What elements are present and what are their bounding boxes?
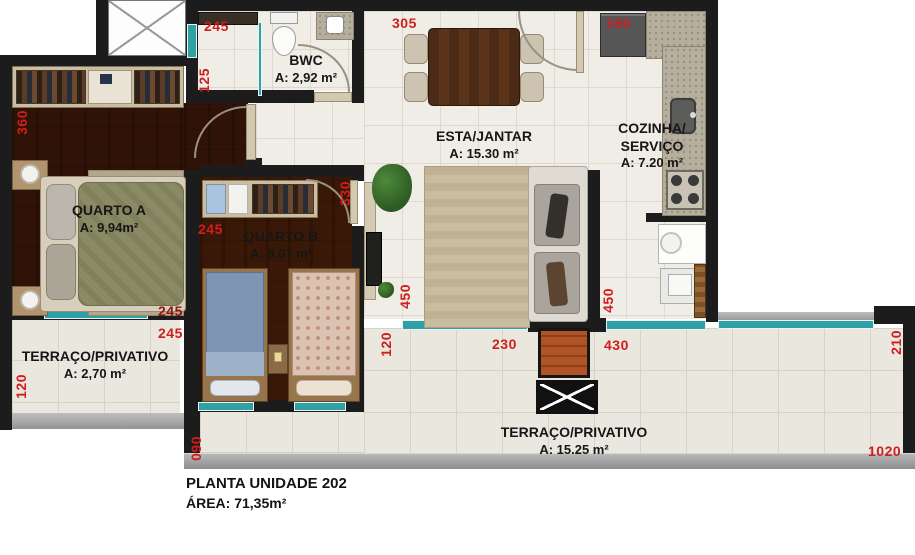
wall-kitchen-right: [706, 0, 718, 322]
washing-machine-door: [660, 232, 682, 254]
kitchen-slider-window: [606, 320, 706, 330]
esta-jantar-name: ESTA/JANTAR: [406, 128, 562, 146]
quarto-b-wardrobe-clothes: [252, 184, 314, 214]
quarto-a-pillow-2: [46, 244, 76, 300]
dim-kitchen-terrace: 450: [601, 288, 615, 313]
stove-burner-4: [688, 193, 699, 204]
elevator-shaft: [108, 0, 186, 56]
quarto-a-duvet: [78, 182, 184, 306]
quarto-a-lamp-1: [20, 164, 40, 184]
dim-hall-top: 305: [392, 16, 417, 30]
room-label-terraco-grande: TERRAÇO/PRIVATIVO A: 15.25 m²: [494, 424, 654, 458]
wall-living-kitchen: [586, 170, 600, 332]
service-deck-strip: [694, 264, 706, 318]
quarto-b-area: A: 8,07 m²: [206, 246, 356, 262]
living-rug: [424, 166, 530, 328]
room-label-quarto-a: QUARTO A A: 9,94m²: [38, 202, 180, 236]
terraco-grande-area: A: 15.25 m²: [494, 442, 654, 458]
dim-quarto-a-window: 245: [158, 326, 183, 340]
esta-jantar-area: A: 15.30 m²: [406, 146, 562, 162]
dim-terrace-left-edge: 090: [189, 436, 203, 461]
plan-title-line2: ÁREA: 71,35m²: [186, 494, 486, 513]
quarto-b-bed-blue-pillow: [210, 380, 260, 396]
quarto-b-wardrobe-shirt-2: [228, 184, 248, 214]
toilet-tank: [270, 12, 298, 24]
corridor-floor: [256, 100, 364, 170]
dining-table: [428, 28, 520, 106]
dining-chair-4: [520, 72, 544, 102]
quarto-a-door-leaf: [246, 104, 256, 160]
wall-right-outer: [903, 306, 915, 464]
bwc-shaft-window: [187, 24, 197, 58]
dim-terrace-right-span: 430: [604, 338, 629, 352]
plan-title: PLANTA UNIDADE 202 ÁREA: 71,35m²: [186, 474, 486, 513]
dim-quarto-b-right: 330: [338, 181, 352, 206]
dim-quarto-a-left: 360: [15, 110, 29, 135]
bwc-door-leaf: [314, 92, 352, 102]
bwc-name: BWC: [250, 52, 362, 70]
dim-quarto-b-bottom: 120: [379, 332, 393, 357]
terrace-large-floor-left: [200, 410, 364, 454]
bwc-area: A: 2,92 m²: [250, 70, 362, 86]
wall-left-outer: [0, 55, 12, 430]
terraco-pequeno-name: TERRAÇO/PRIVATIVO: [20, 348, 170, 366]
terraco-grande-name: TERRAÇO/PRIVATIVO: [494, 424, 654, 442]
quarto-a-area: A: 9,94m²: [38, 220, 180, 236]
stove-burner-2: [688, 175, 699, 186]
terrace-rail-glass: [718, 320, 874, 329]
wall-shaft-bottom: [96, 56, 190, 66]
wall-terrace-corner: [874, 306, 904, 324]
quarto-b-bed-blue-fold: [206, 352, 264, 376]
stove-burner-3: [671, 193, 682, 204]
dining-chair-2: [404, 72, 428, 102]
quarto-b-candle: [274, 352, 282, 362]
room-label-esta-jantar: ESTA/JANTAR A: 15.30 m²: [406, 128, 562, 162]
cozinha-area: A: 7.20 m²: [602, 155, 702, 171]
terrace-duct: [536, 380, 598, 414]
quarto-a-wardrobe-clothes-right: [134, 70, 180, 104]
tv-panel: [366, 232, 382, 286]
room-label-terraco-pequeno: TERRAÇO/PRIVATIVO A: 2,70 m²: [20, 348, 170, 382]
quarto-b-wardrobe-shirt-1: [206, 184, 226, 214]
cozinha-name-line1: COZINHA/: [602, 120, 702, 138]
quarto-b-bed-floral-mattress: [292, 272, 356, 376]
dim-living-terrace: 450: [398, 284, 412, 309]
plan-title-line1: PLANTA UNIDADE 202: [186, 474, 486, 494]
dim-terrace-right: 210: [889, 330, 903, 355]
dim-bwc-left: 125: [197, 68, 211, 93]
wall-quarto-a-top: [0, 55, 100, 66]
cozinha-name-line2: SERVIÇO: [602, 138, 702, 156]
room-label-bwc: BWC A: 2,92 m²: [250, 52, 362, 86]
churrasqueira-grill: [538, 328, 590, 378]
quarto-b-bed-floral-pillow: [296, 380, 352, 396]
dim-bwc-top: 245: [204, 19, 229, 33]
quarto-b-window-2: [294, 402, 346, 411]
dim-quarto-a-wall: 245: [158, 304, 183, 318]
stove-burner-1: [671, 175, 682, 186]
quarto-a-wardrobe-clothes-left: [16, 70, 86, 104]
wall-bwc-bottom: [196, 90, 314, 103]
dim-kitchen-top: 160: [606, 16, 631, 30]
wall-quarto-b-top: [200, 165, 364, 177]
quarto-b-window-1: [198, 402, 254, 411]
quarto-a-wardrobe-item: [100, 74, 112, 84]
room-label-quarto-b: QUARTO B A: 8,07 m²: [206, 228, 356, 262]
dim-terrace-mid: 230: [492, 337, 517, 351]
kitchen-faucet: [690, 112, 696, 118]
bwc-basin: [326, 16, 344, 34]
room-label-cozinha: COZINHA/ SERVIÇO A: 7.20 m²: [602, 120, 702, 171]
entry-door-leaf: [576, 11, 584, 73]
quarto-a-name: QUARTO A: [38, 202, 180, 220]
quarto-a-lamp-2: [20, 290, 40, 310]
laundry-sink-basin: [668, 274, 692, 296]
quarto-b-name: QUARTO B: [206, 228, 356, 246]
wall-quarto-b-right-stub: [352, 165, 364, 181]
terraco-pequeno-area: A: 2,70 m²: [20, 366, 170, 382]
dim-terrace-bottom: 1020: [868, 444, 901, 458]
terrace-small-sill: [12, 413, 184, 429]
dining-chair-1: [404, 34, 428, 64]
floor-plan-unit-202: 245 125 305 160 360 245 245 245 330 120 …: [0, 0, 915, 555]
